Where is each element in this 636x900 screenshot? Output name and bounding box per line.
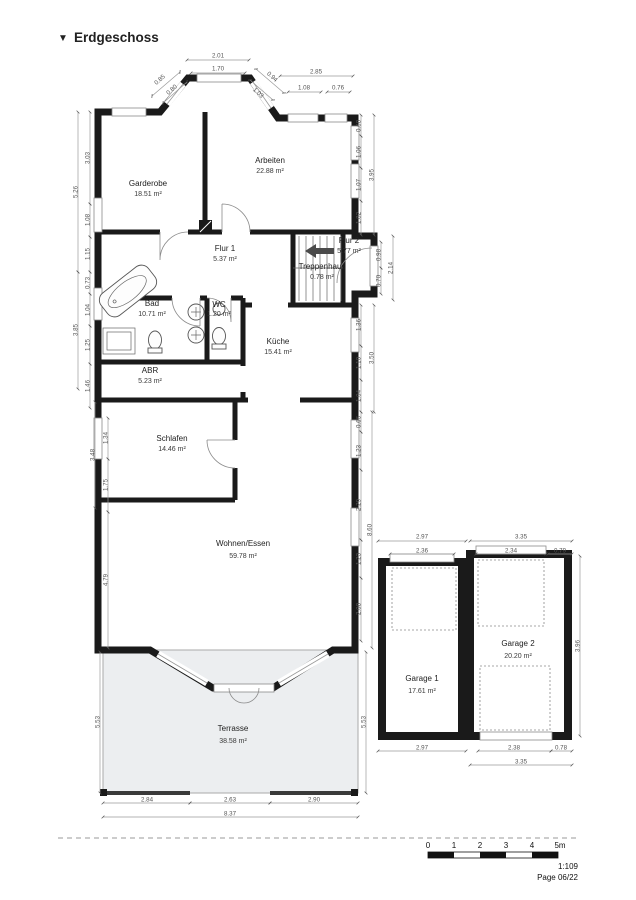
room-area: 1.20 m²: [207, 311, 231, 318]
dim-label: 0.73: [85, 276, 92, 289]
dim-label: 3.48: [90, 448, 97, 461]
room-name: Schlafen: [156, 434, 187, 443]
dim-label: 2.08: [356, 602, 363, 615]
room-name: WC: [212, 300, 226, 309]
dim-label: 2.85: [310, 69, 323, 76]
garage-door-swing: [478, 560, 544, 626]
dim-label: 2.01: [212, 53, 225, 60]
section-header[interactable]: ▼ Erdgeschoss: [58, 30, 159, 45]
dim-label: 3.03: [85, 151, 92, 164]
dim-label: 1.46: [85, 379, 92, 392]
scale-bar: 0 1 2 3 4 5m: [426, 841, 566, 858]
dim-label: 1.04: [356, 389, 363, 402]
dim-label: 0.66: [356, 415, 363, 428]
room-name: Flur 2: [339, 236, 360, 245]
dim-label: 3.85: [73, 323, 80, 336]
collapse-triangle-icon[interactable]: ▼: [58, 33, 68, 44]
room-name: Garage 2: [501, 639, 535, 648]
windows: [94, 74, 378, 692]
room-area: 17.61 m²: [408, 688, 436, 695]
garage-door-swing: [480, 666, 550, 730]
wall-column-marker: [199, 220, 212, 233]
interior-walls: [98, 112, 355, 500]
door-swings: [160, 204, 372, 703]
dim-label: 1.25: [85, 338, 92, 351]
dim-label: 2.29: [356, 498, 363, 511]
scale-tick-label: 5m: [554, 841, 565, 850]
scale-tick-label: 0: [426, 841, 431, 850]
dim-label: 1.75: [103, 478, 110, 491]
dim-label: 2.38: [508, 745, 521, 752]
dim-label: 3.96: [575, 639, 582, 652]
dim-label: 1.07: [356, 178, 363, 191]
dim-label: 1.08: [85, 213, 92, 226]
terrace-area: [100, 650, 358, 796]
room-area: 59.78 m²: [229, 553, 257, 560]
room-name: Wohnen/Essen: [216, 539, 270, 548]
dim-label: 3.35: [515, 534, 528, 541]
garage-door-swing: [392, 568, 456, 630]
dim-label: 2.63: [224, 797, 237, 804]
dim-label: 5.53: [361, 715, 368, 728]
stair-direction-arrow: [305, 244, 334, 258]
dim-label: 4.79: [103, 573, 110, 586]
dim-label: 0.79: [554, 548, 567, 555]
dim-label: 1.36: [356, 318, 363, 331]
toilet-icon: [149, 331, 162, 349]
garage-1-box: [382, 562, 462, 736]
dim-label: 2.84: [141, 797, 154, 804]
room-area: 5.23 m²: [138, 378, 162, 385]
scale-tick-label: 3: [504, 841, 509, 850]
dim-label: 1.23: [356, 444, 363, 457]
footer: 0 1 2 3 4 5m 1:109 Page 06/22: [58, 838, 579, 882]
dim-label: 2.97: [416, 534, 429, 541]
room-area: 18.51 m²: [134, 191, 162, 198]
room-name: Arbeiten: [255, 156, 285, 165]
dim-label: 1.08: [298, 85, 311, 92]
dim-label: 1.70: [212, 66, 225, 73]
scale-tick-label: 1: [452, 841, 457, 850]
dim-label: 2.34: [505, 548, 518, 555]
dim-label: 0.68: [356, 119, 363, 132]
dim-label: 1.82: [356, 211, 363, 224]
dim-label: 1.23: [356, 552, 363, 565]
page-indicator: Page 06/22: [537, 873, 578, 882]
dim-label: 2.97: [416, 745, 429, 752]
room-name: Garage 1: [405, 674, 439, 683]
dim-label: 1.06: [356, 145, 363, 158]
toilet-icon: [213, 328, 226, 345]
dim-label: 2.14: [388, 261, 395, 274]
room-area: 0.78 m²: [310, 274, 334, 281]
room-area: 5.77 m²: [337, 248, 361, 255]
floor-plan-canvas: ▼ Erdgeschoss: [0, 0, 636, 900]
dim-label: 0.70: [376, 274, 383, 287]
room-area: 5.37 m²: [213, 256, 237, 263]
dim-label: 0.98: [376, 248, 383, 261]
dim-label: 5.53: [95, 715, 102, 728]
room-name: Garderobe: [129, 179, 168, 188]
dim-label: 8.37: [224, 811, 237, 818]
room-area: 38.58 m²: [219, 738, 247, 745]
dim-label: 2.90: [308, 797, 321, 804]
dim-label: 3.35: [515, 759, 528, 766]
dim-label: 8.60: [367, 523, 374, 536]
scale-tick-label: 2: [478, 841, 483, 850]
room-name: Bad: [145, 299, 159, 308]
dim-label: 0.76: [332, 85, 345, 92]
dim-label: 2.36: [416, 548, 429, 555]
dim-label: 1.04: [85, 303, 92, 316]
floor-plan-page: ▼ Erdgeschoss: [0, 0, 636, 900]
dim-label: 1.34: [103, 431, 110, 444]
dim-label: 5.26: [73, 185, 80, 198]
dim-label: 0.94: [265, 70, 279, 84]
section-title: Erdgeschoss: [74, 30, 159, 45]
dim-label: 1.15: [85, 247, 92, 260]
room-area: 10.71 m²: [138, 311, 166, 318]
dim-label: 3.50: [369, 351, 376, 364]
room-name: ABR: [142, 366, 159, 375]
room-area: 14.46 m²: [158, 446, 186, 453]
scale-ratio: 1:109: [558, 862, 579, 871]
garage-structure: [382, 546, 568, 740]
room-area: 20.20 m²: [504, 653, 532, 660]
dim-label: 3.95: [369, 168, 376, 181]
dim-label: 1.10: [356, 356, 363, 369]
dim-label: 0.78: [555, 745, 568, 752]
scale-tick-label: 4: [530, 841, 535, 850]
room-name: Flur 1: [215, 244, 236, 253]
room-name: Terrasse: [218, 724, 249, 733]
room-area: 22.88 m²: [256, 168, 284, 175]
room-name: Küche: [267, 337, 290, 346]
room-name: Treppenhaus: [299, 262, 346, 271]
room-area: 15.41 m²: [264, 349, 292, 356]
